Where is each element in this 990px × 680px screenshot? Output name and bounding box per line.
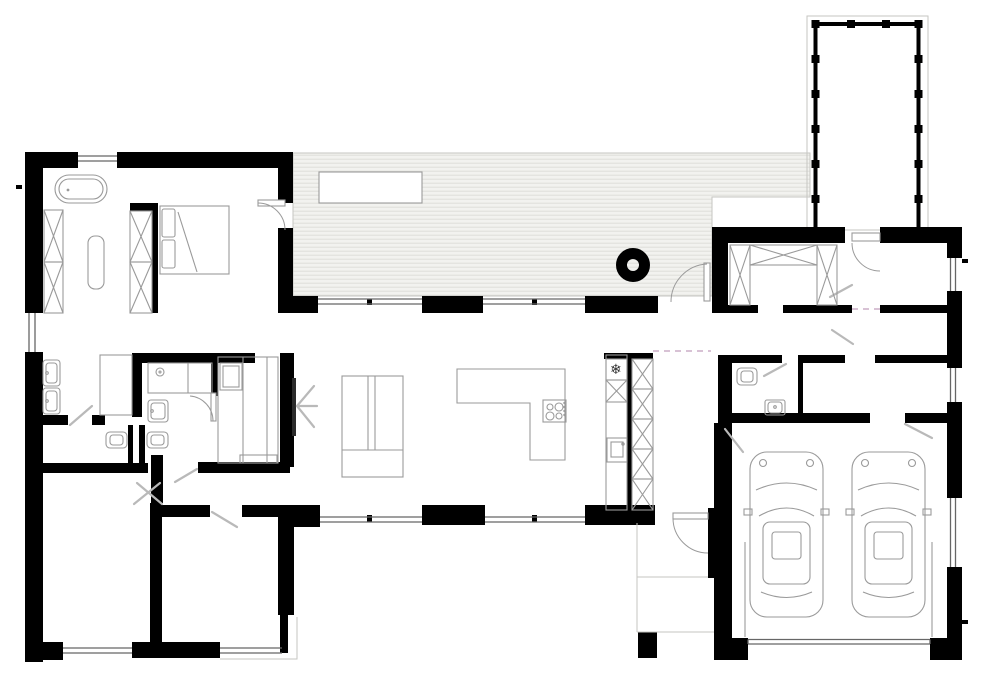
- door-leaf-entry: [852, 233, 880, 241]
- wc-room: [737, 368, 785, 415]
- car-2: [846, 452, 931, 617]
- swing-strip-door: [175, 469, 197, 482]
- bath-cabinet: [100, 355, 132, 415]
- double-bed: [160, 206, 229, 274]
- carport-driveway: [807, 16, 928, 230]
- door-leaf-bathroom2: [211, 393, 216, 421]
- double-vanity: [43, 360, 60, 414]
- bathtub-inner: [59, 179, 103, 199]
- bathroom-strip: [43, 355, 278, 463]
- snowflake-icon: ❄: [610, 362, 622, 378]
- master-suite: [44, 175, 229, 313]
- floor-plan-page: ❄: [0, 0, 990, 680]
- patio-edge: [637, 523, 714, 632]
- swing-bedroom2: [212, 512, 237, 527]
- toilet-2: [147, 432, 168, 448]
- bathtub-drain-icon: [67, 189, 70, 192]
- window-east-2: [951, 368, 956, 402]
- toilet-1: [106, 432, 127, 448]
- window-master-west: [29, 313, 35, 352]
- walk-in-closet-shelving: [218, 357, 278, 463]
- bench: [88, 236, 104, 289]
- hall-cabinet: [240, 455, 277, 463]
- entry-closets: [730, 245, 837, 305]
- kitchen: ❄: [457, 355, 653, 510]
- tv-projection-lines: [297, 386, 317, 427]
- window-master-north: [78, 156, 117, 161]
- swing-hall: [832, 330, 853, 344]
- shower: [148, 363, 212, 393]
- swing-master-bath: [70, 406, 92, 425]
- terrace-deck: [293, 153, 810, 296]
- living-room: [292, 376, 403, 477]
- kitchen-island: [457, 369, 565, 460]
- outdoor-table: [319, 172, 422, 203]
- door-arc-bathroom2: [190, 396, 213, 421]
- wardrobe-column-west: [44, 210, 63, 313]
- door-leaf-patio: [673, 513, 708, 519]
- swing-garage-east: [905, 424, 932, 438]
- double-garage: [744, 452, 932, 644]
- door-arc-entry: [852, 243, 880, 271]
- door-arc-master-terrace: [258, 203, 285, 230]
- door-arc-patio: [673, 518, 708, 553]
- dashed-openings: [653, 309, 880, 351]
- tv: [292, 378, 296, 436]
- swing-wc: [764, 364, 786, 376]
- cooktop-icon: [543, 400, 566, 422]
- door-leaf-terrace-main: [704, 263, 710, 301]
- toilet-3: [737, 368, 757, 385]
- floor-plan-drawing: ❄: [0, 0, 990, 680]
- window-east-1: [951, 258, 956, 291]
- pantry-sink: [607, 438, 627, 462]
- garage-door: [748, 640, 930, 645]
- car-1: [744, 452, 829, 617]
- tall-cabinet-x-column: [632, 359, 653, 510]
- entry-mudroom: [730, 245, 837, 305]
- window-east-3: [951, 498, 956, 567]
- carport-top-rail: [814, 22, 921, 26]
- carport-outline: [807, 16, 928, 230]
- sideboard: [342, 376, 403, 477]
- carport-posts: [812, 20, 923, 203]
- washbasin-wc: [765, 400, 785, 415]
- wardrobe-column-mid: [130, 211, 152, 313]
- washbasin-bath2: [148, 400, 168, 422]
